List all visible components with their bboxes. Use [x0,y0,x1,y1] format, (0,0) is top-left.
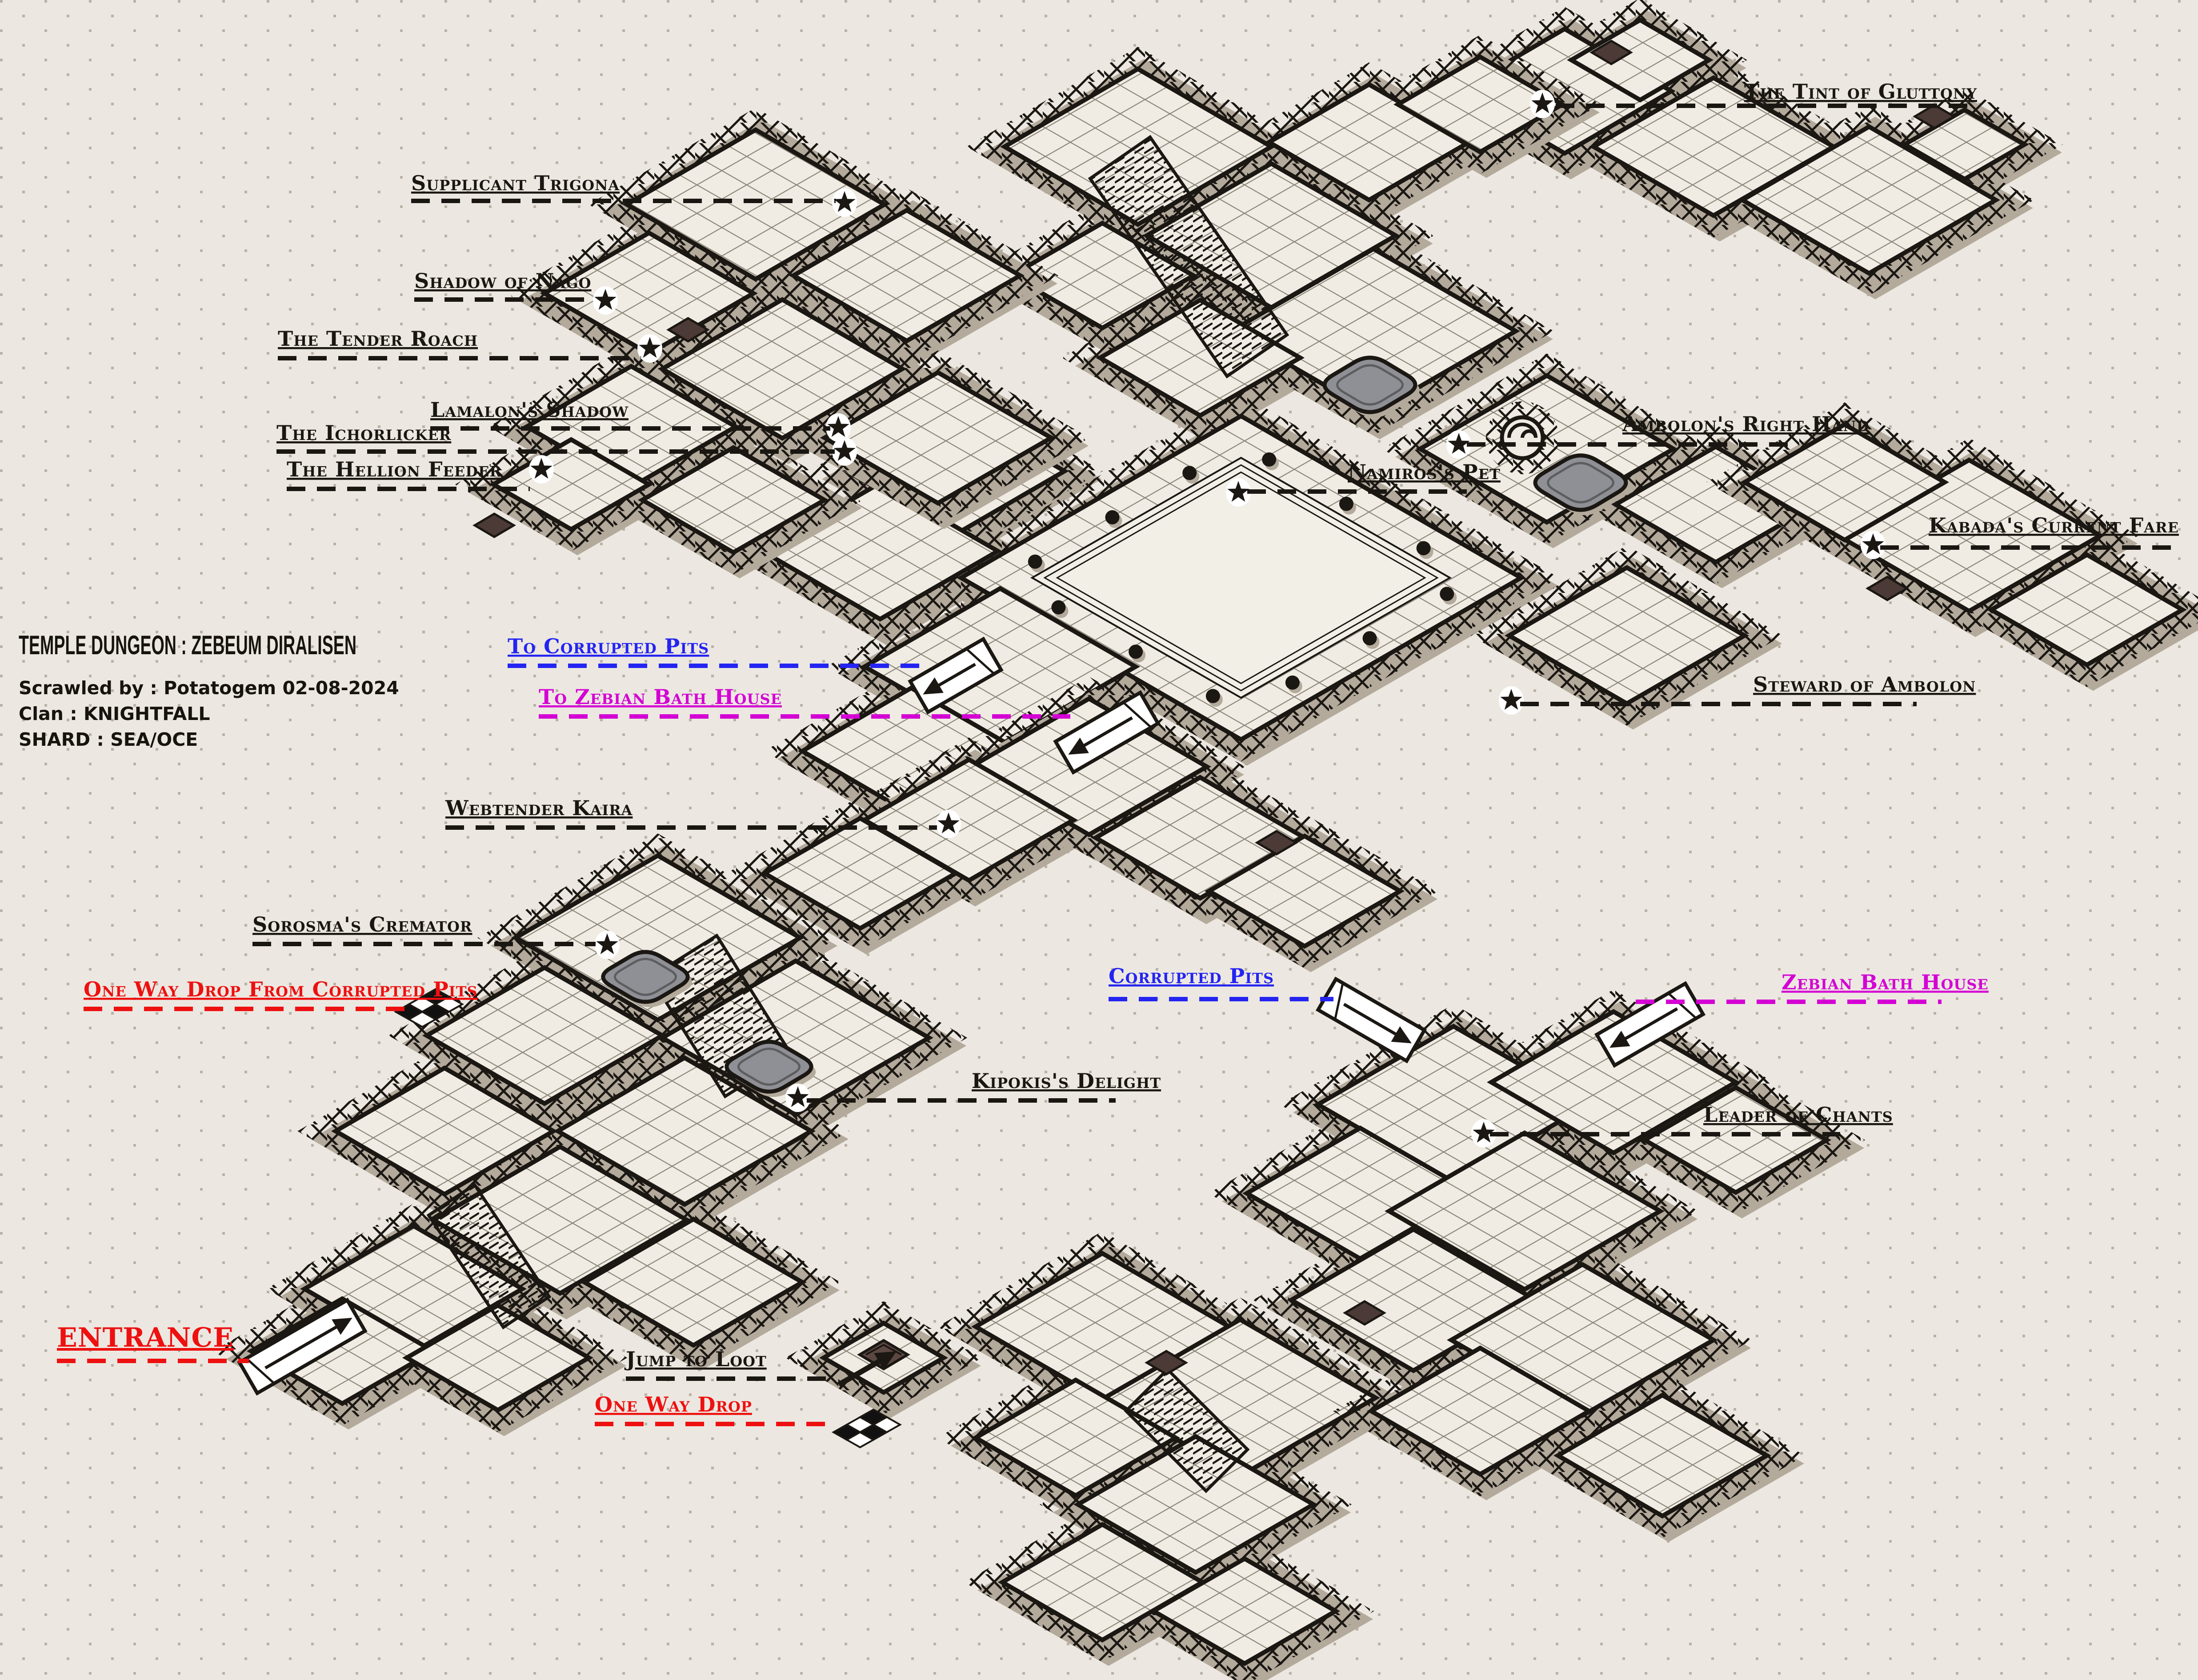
label-text: Namiros's Pet [1348,460,1501,484]
map-clan: Clan : KNIGHTFALL [19,703,210,724]
label-text: Leader of Chants [1703,1103,1893,1127]
label-text: To Zebian Bath House [539,685,782,709]
label-text: The Tender Roach [278,327,478,351]
column [1285,676,1300,690]
label-text: Supplicant Trigona [411,171,620,195]
column [1129,644,1143,659]
label-text: Kabada's Current Fare [1929,513,2179,537]
label-text: Jump to Loot [624,1347,767,1371]
dungeon-map-page: The Tint of Gluttony Supplicant Trigona … [0,0,2198,1680]
label-text: Steward of Ambolon [1753,672,1976,696]
label-text: Shadow of Nago [414,269,592,293]
label-text: Kipokis's Delight [972,1069,1161,1093]
label-text: Ambolon's Right Hand [1622,412,1869,436]
label-text: ENTRANCE [57,1322,234,1353]
map-shard: SHARD : SEA/OCE [19,729,198,750]
label-text: To Corrupted Pits [508,634,709,658]
column [1051,600,1065,615]
label-text: Sorosma's Cremator [252,912,472,936]
label-text: One Way Drop From Corrupted Pits [84,977,478,1001]
column [1206,689,1220,703]
column [1363,631,1377,645]
column [1105,510,1119,524]
label-text: The Tint of Gluttony [1744,80,1977,104]
map-title: TEMPLE DUNGEON : ZEBEUM DIRALISEN [19,630,356,660]
label-text: The Hellion Feeder [287,457,502,481]
label-text: Webtender Kaira [445,796,633,820]
label-text: The Ichorlicker [276,421,451,445]
label-text: Zebian Bath House [1782,970,1989,994]
label-text: Corrupted Pits [1109,964,1274,988]
column [1028,555,1042,569]
label-text: Lamalon's Shadow [430,398,629,422]
column [1339,497,1353,511]
dungeon-map-canvas: The Tint of Gluttony Supplicant Trigona … [0,0,2198,1680]
map-credit: Scrawled by : Potatogem 02-08-2024 [19,677,399,699]
column [1262,452,1276,467]
column [1182,466,1197,480]
column [1417,541,1431,555]
spiral-stair [1496,411,1549,464]
column [1440,587,1454,601]
label-text: One Way Drop [595,1392,752,1416]
